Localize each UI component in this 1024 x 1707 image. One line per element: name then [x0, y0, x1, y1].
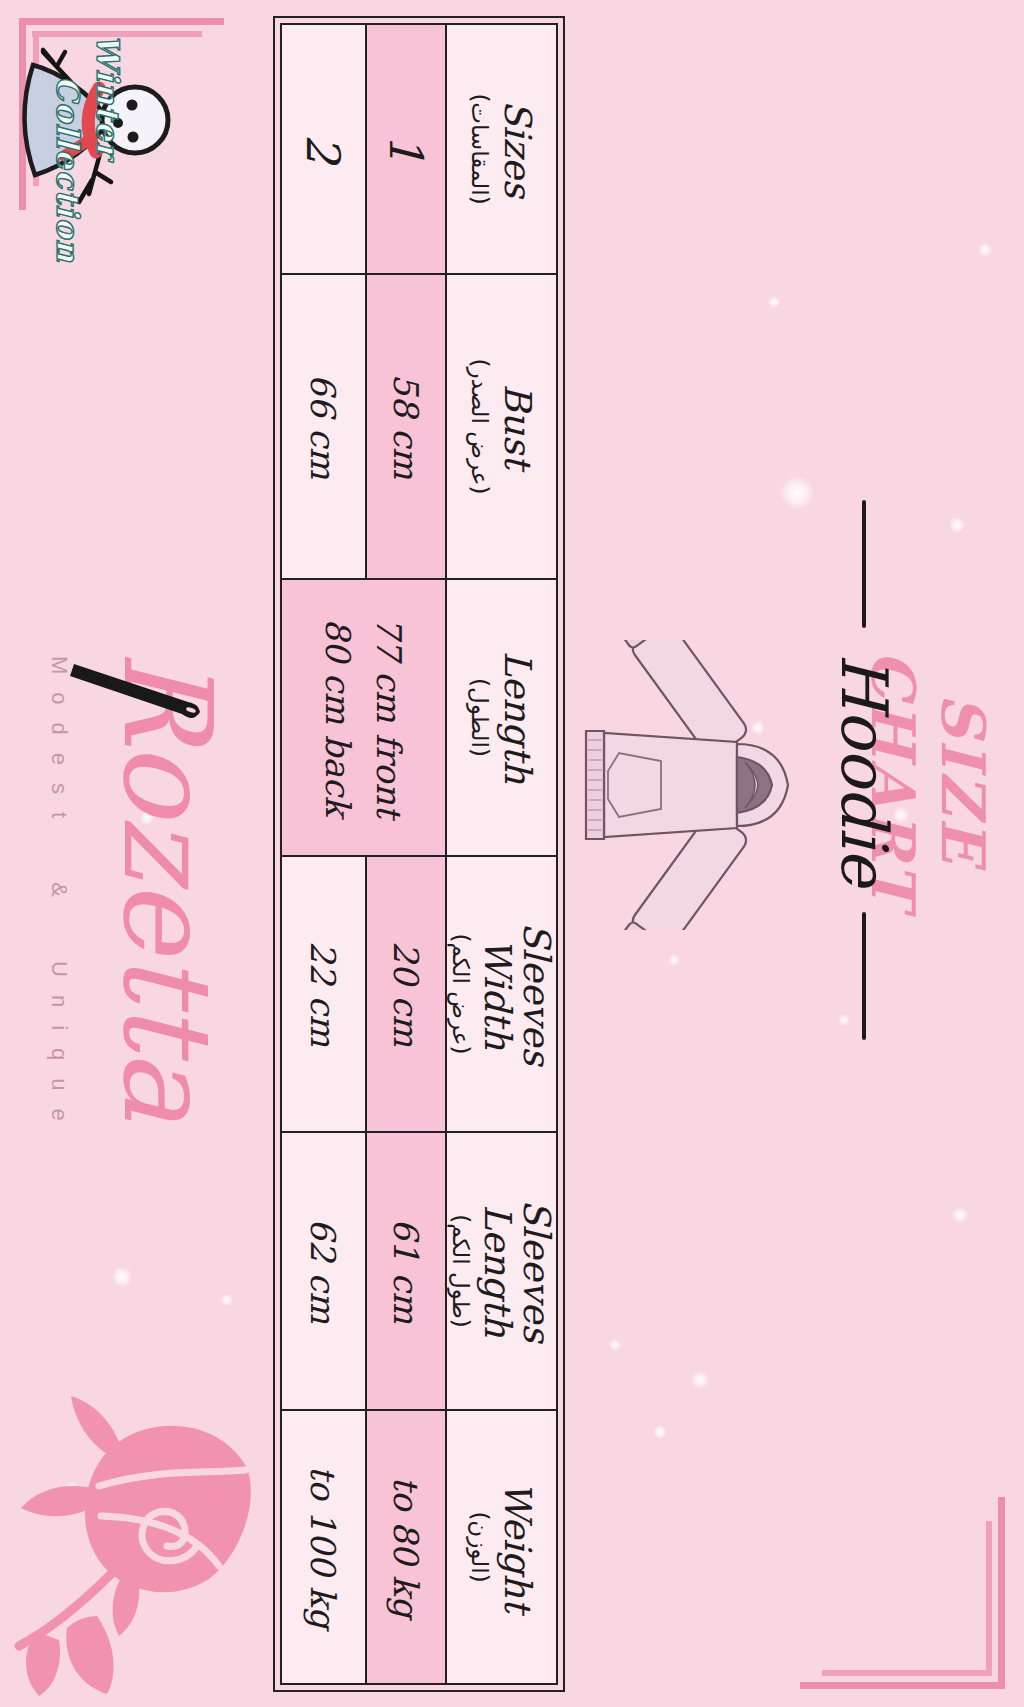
- table-cell: 58 cm: [365, 275, 445, 578]
- table-cell: 62 cm: [282, 1133, 365, 1409]
- dash-line: [862, 912, 866, 1040]
- frame-line: [822, 1670, 992, 1676]
- header-weight: Weight (الوزن): [445, 1411, 556, 1683]
- cell-value: 1: [379, 134, 433, 163]
- table-cell-length-merged: 77 cm front 80 cm back: [282, 580, 445, 855]
- frame-line: [800, 1682, 1005, 1689]
- table-cell: to 80 kg: [365, 1411, 445, 1683]
- sparkle: [609, 1339, 621, 1351]
- header-label-arabic: (الطول): [467, 678, 493, 757]
- sparkle: [949, 517, 965, 533]
- header-label-arabic: (المقاسات): [467, 93, 493, 204]
- cell-value: 61 cm: [386, 1218, 426, 1323]
- header-sleeves-width: Sleeves Width (عرض الكم): [445, 857, 556, 1131]
- size-table-grid: Sizes (المقاسات) 1 2 Bust (عرض الصدر) 58…: [280, 23, 558, 1685]
- sparkle: [691, 1371, 709, 1389]
- header-bust: Bust (عرض الصدر): [445, 275, 556, 578]
- header-sizes: Sizes (المقاسات): [445, 25, 556, 273]
- table-cell: 22 cm: [282, 857, 365, 1131]
- header-label-arabic: (الوزن): [467, 1511, 493, 1582]
- header-label: Sleeves: [517, 1200, 555, 1343]
- cell-value-line: 80 cm back: [313, 619, 364, 817]
- cell-value-line: 77 cm front: [364, 617, 415, 818]
- sparkle: [112, 1267, 132, 1287]
- table-cell: 1: [365, 25, 445, 273]
- header-label: Bust: [497, 384, 535, 469]
- product-name: Hoodie: [827, 654, 901, 886]
- column-sleeves-width: Sleeves Width (عرض الكم) 20 cm 22 cm: [282, 855, 556, 1131]
- cell-value: 2: [297, 134, 351, 163]
- frame-line: [998, 1497, 1005, 1689]
- cell-value: 66 cm: [304, 374, 344, 479]
- frame-line: [986, 1521, 992, 1676]
- header-length: Length (الطول): [445, 580, 556, 855]
- column-bust: Bust (عرض الصدر) 58 cm 66 cm: [282, 273, 556, 578]
- hoodie-illustration: [564, 640, 809, 930]
- rose-icon: [4, 1378, 259, 1707]
- header-label-arabic: (عرض الكم): [448, 934, 474, 1055]
- column-length: Length (الطول) 77 cm front 80 cm back: [282, 578, 556, 855]
- sparkle: [768, 296, 780, 308]
- header-label: Width: [478, 938, 516, 1050]
- cell-value: to 80 kg: [386, 1476, 426, 1617]
- header-label: Weight: [497, 1481, 535, 1612]
- cell-value: to 100 kg: [304, 1465, 344, 1628]
- table-cell: 2: [282, 25, 365, 273]
- size-table: Sizes (المقاسات) 1 2 Bust (عرض الصدر) 58…: [273, 16, 565, 1692]
- sparkle: [668, 954, 680, 966]
- dash-line: [862, 500, 866, 628]
- sparkle: [653, 1425, 667, 1439]
- header-label-arabic: (عرض الصدر): [467, 358, 493, 494]
- table-cell: to 100 kg: [282, 1411, 365, 1683]
- cell-value: 58 cm: [386, 374, 426, 479]
- product-subtitle-row: Hoodie: [822, 460, 906, 1080]
- header-label: Length: [478, 1205, 516, 1338]
- table-cell: 20 cm: [365, 857, 445, 1131]
- sparkle: [780, 476, 814, 510]
- sparkle: [221, 1294, 233, 1306]
- header-label: Sleeves: [517, 923, 555, 1066]
- collection-badge-line1: Winter: [90, 34, 126, 159]
- header-label: Sizes: [497, 100, 535, 198]
- cell-value: 62 cm: [304, 1218, 344, 1323]
- column-sizes: Sizes (المقاسات) 1 2: [282, 25, 556, 273]
- collection-badge-line2: Collection: [50, 76, 86, 263]
- cell-value: 20 cm: [386, 941, 426, 1046]
- column-sleeves-length: Sleeves Length (طول الكم) 61 cm 62 cm: [282, 1131, 556, 1409]
- needle-icon: [66, 640, 226, 740]
- header-label-arabic: (طول الكم): [448, 1214, 474, 1328]
- table-cell: 66 cm: [282, 275, 365, 578]
- header-sleeves-length: Sleeves Length (طول الكم): [445, 1133, 556, 1409]
- sparkle: [952, 1207, 968, 1223]
- rotated-canvas: SIZE CHART Hoodie: [0, 0, 1024, 1707]
- size-chart-poster: { "page": { "background": "#f8d7e2", "ce…: [0, 0, 1024, 1707]
- brand-tagline: Modest & Unique: [46, 656, 72, 1139]
- table-cell: 61 cm: [365, 1133, 445, 1409]
- cell-value: 22 cm: [304, 941, 344, 1046]
- header-label: Length: [497, 651, 535, 784]
- column-weight: Weight (الوزن) to 80 kg to 100 kg: [282, 1409, 556, 1683]
- sparkle: [978, 243, 992, 257]
